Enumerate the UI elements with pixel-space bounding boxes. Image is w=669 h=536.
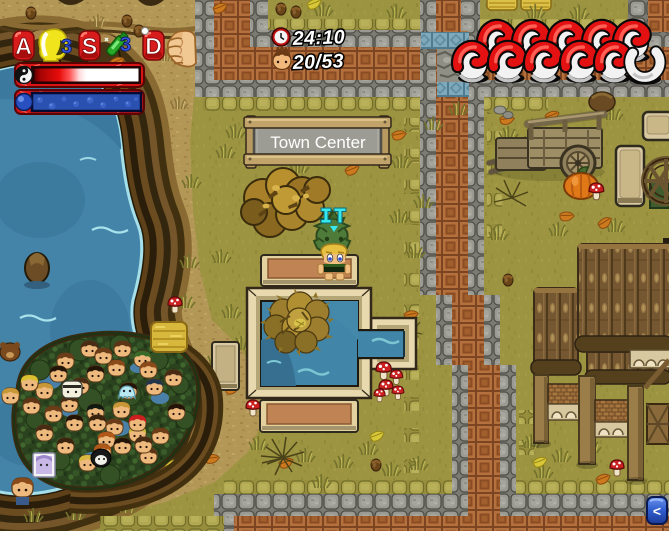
svg-text:20/53: 20/53 (291, 50, 344, 74)
svg-text:24:10: 24:10 (291, 26, 345, 50)
svg-text:<: < (653, 503, 661, 519)
svg-text:Town Center: Town Center (270, 133, 366, 152)
svg-text:A: A (15, 33, 32, 59)
svg-text:3: 3 (61, 36, 72, 58)
svg-text:D: D (145, 33, 162, 59)
svg-text:3: 3 (120, 34, 131, 56)
svg-text:S: S (82, 33, 97, 59)
